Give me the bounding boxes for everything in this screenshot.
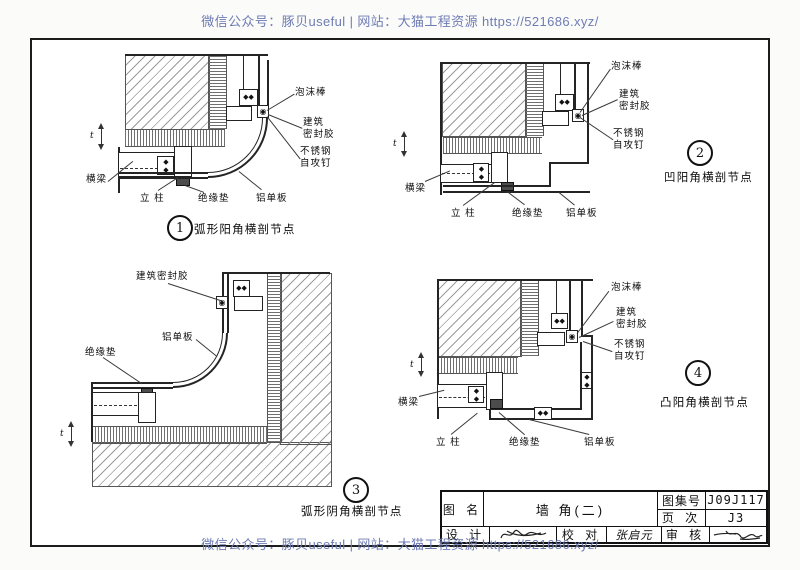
- label-foam-rod: 泡沫棒: [295, 84, 327, 98]
- panel-line: [556, 280, 557, 317]
- label-sealant: 建筑密封胶: [619, 89, 651, 112]
- label-aluminum-panel: 铝单板: [584, 434, 616, 448]
- label-column: 立 柱: [451, 205, 476, 219]
- panel-line: [569, 280, 571, 334]
- label-line: 自攻钉: [614, 351, 646, 363]
- cut-line: [222, 272, 330, 274]
- dimension-arrow: [101, 129, 102, 144]
- panel-line: [560, 63, 561, 97]
- label-line: 建筑: [303, 117, 335, 129]
- label-sealant: 建筑密封胶: [136, 268, 189, 282]
- drawing-sheet: { "watermark": { "text": "微信公众号：豚贝useful…: [0, 0, 800, 570]
- fastener-icon: ◆◆: [239, 89, 258, 106]
- cut-line: [440, 62, 590, 64]
- insulation-strip: [267, 273, 282, 442]
- panel-line: [92, 382, 173, 384]
- page-value: J3: [706, 510, 766, 528]
- label-insulation-pad: 绝缘垫: [509, 434, 541, 448]
- watermark-bottom: 微信公众号：豚贝useful | 网站：大猫工程资源 https://52168…: [201, 534, 598, 553]
- title-name-label: 图 名: [442, 492, 484, 527]
- wall-hatch: [437, 280, 522, 357]
- label-aluminum-panel: 铝单板: [162, 329, 194, 343]
- label-insulation-pad: 绝缘垫: [85, 344, 117, 358]
- label-screw: 不锈钢自攻钉: [613, 128, 645, 151]
- mullion-column: [138, 392, 156, 423]
- detail-number-3: 3: [343, 477, 369, 503]
- mullion-column: [491, 152, 508, 183]
- dimension-label: t: [393, 139, 397, 149]
- review-label: 审 核: [662, 527, 710, 542]
- sealant-joint-icon: ◉: [216, 296, 228, 309]
- panel-line: [443, 191, 590, 193]
- watermark-top: 微信公众号：豚贝useful | 网站：大猫工程资源 https://52168…: [201, 11, 598, 30]
- dimension-label: t: [410, 360, 414, 370]
- label-line: 不锈钢: [613, 128, 645, 140]
- label-line: 不锈钢: [614, 339, 646, 351]
- label-aluminum-panel: 铝单板: [256, 190, 288, 204]
- beam-centerline: [94, 405, 137, 406]
- panel-line: [243, 55, 244, 93]
- wall-hatch: [280, 273, 332, 445]
- label-beam: 横梁: [405, 180, 426, 194]
- label-insulation-pad: 绝缘垫: [198, 190, 230, 204]
- dimension-label: t: [90, 131, 94, 141]
- dimension-arrow: [71, 427, 72, 441]
- page-label: 页 次: [658, 510, 706, 528]
- fastener-icon: ◆◆: [468, 386, 484, 403]
- label-beam: 横梁: [398, 394, 419, 408]
- label-foam-rod: 泡沫棒: [611, 58, 643, 72]
- proof-name: 张启元: [607, 527, 662, 542]
- detail-caption-2: 凹阳角横剖节点: [664, 169, 753, 185]
- label-foam-rod: 泡沫棒: [611, 279, 643, 293]
- detail-number-4: 4: [685, 360, 711, 386]
- wall-hatch: [442, 63, 527, 137]
- bracket: [537, 332, 565, 346]
- label-screw: 不锈钢自攻钉: [614, 339, 646, 362]
- label-sealant: 建筑密封胶: [303, 117, 335, 140]
- review-signature: [710, 527, 766, 542]
- panel-line: [118, 172, 208, 174]
- drawing-name: 墙 角(二): [484, 492, 658, 527]
- fastener-icon: ◆◆: [534, 407, 552, 420]
- detail-caption-4: 凸阳角横剖节点: [660, 394, 749, 410]
- detail-number-1: 1: [167, 215, 193, 241]
- bracket: [234, 296, 263, 311]
- detail-caption-3: 弧形阴角横剖节点: [301, 503, 403, 519]
- label-column: 立 柱: [436, 434, 461, 448]
- fastener-icon: ◆◆: [233, 280, 250, 297]
- review-signature-scribble: [712, 527, 764, 542]
- label-line: 自攻钉: [613, 140, 645, 152]
- dimension-label: t: [60, 429, 64, 439]
- panel-line: [550, 162, 589, 164]
- insulation-pad-piece: [501, 182, 514, 191]
- label-beam: 横梁: [86, 171, 107, 185]
- detail-caption-1: 弧形阳角横剖节点: [194, 221, 296, 237]
- label-line: 密封胶: [303, 129, 335, 141]
- insulation-pad-piece: [490, 399, 503, 409]
- label-line: 密封胶: [619, 101, 651, 113]
- panel-line: [574, 63, 576, 113]
- fastener-icon: ◆◆: [581, 372, 592, 389]
- label-line: 自攻钉: [300, 158, 332, 170]
- label-insulation-pad: 绝缘垫: [512, 205, 544, 219]
- set-number-label: 图集号: [658, 492, 706, 510]
- bracket: [542, 111, 569, 126]
- label-aluminum-panel: 铝单板: [566, 205, 598, 219]
- cut-line: [125, 54, 268, 56]
- panel-line: [118, 177, 208, 179]
- label-screw: 不锈钢自攻钉: [300, 146, 332, 169]
- fastener-icon: ◆◆: [551, 313, 568, 329]
- label-line: 建筑: [616, 307, 648, 319]
- dimension-arrow: [421, 358, 422, 371]
- label-column: 立 柱: [140, 190, 165, 204]
- panel-line: [92, 387, 173, 389]
- label-line: 密封胶: [616, 319, 648, 331]
- insulation-strip: [438, 357, 518, 374]
- fastener-icon: ◆◆: [473, 163, 489, 182]
- wall-hatch: [125, 55, 210, 130]
- panel-line: [258, 55, 260, 111]
- label-line: 不锈钢: [300, 146, 332, 158]
- dimension-arrow: [404, 137, 405, 151]
- label-sealant: 建筑密封胶: [616, 307, 648, 330]
- wall-hatch: [92, 442, 332, 487]
- insulation-strip: [92, 426, 267, 444]
- panel-line: [549, 162, 551, 187]
- panel-line: [443, 185, 550, 187]
- label-line: 建筑: [619, 89, 651, 101]
- set-number-value: J09J117: [706, 492, 766, 510]
- detail-number-2: 2: [687, 140, 713, 166]
- transom-beam: [92, 392, 139, 416]
